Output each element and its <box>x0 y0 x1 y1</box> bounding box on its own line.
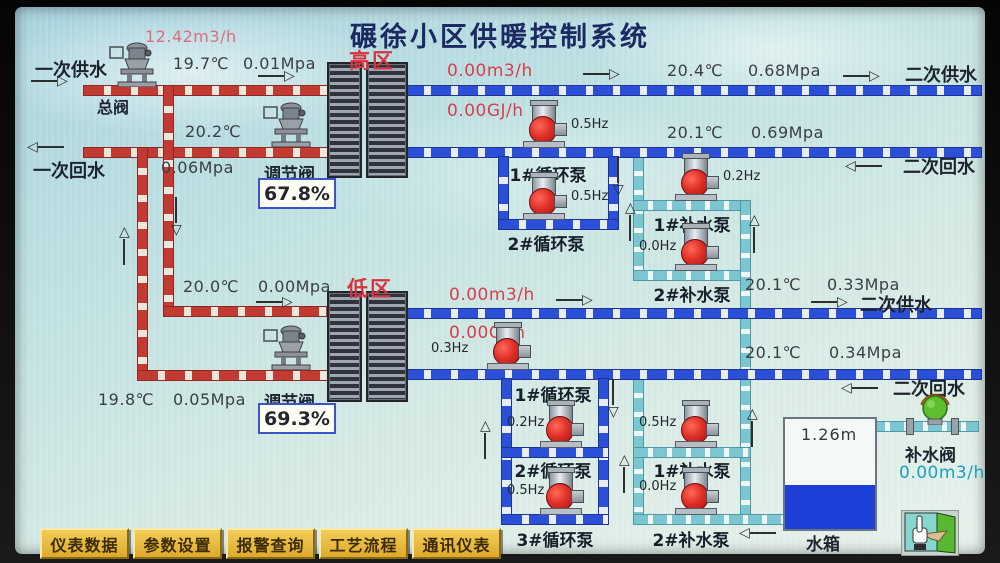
high-zone-return-temp: 20.1℃ <box>667 123 723 142</box>
secondary-supply-high-label: 二次供水 <box>905 61 977 87</box>
nav-button-parameter-settings[interactable]: 参数设置 <box>133 528 222 559</box>
nav-button-instrument-data[interactable]: 仪表数据 <box>40 528 129 559</box>
regulating-valve-low-icon <box>261 324 317 370</box>
valve-opening-low-display[interactable]: 69.3% <box>258 403 336 434</box>
circ-pump-1-high-icon <box>521 103 565 147</box>
makeup-pump-2-high-frequency: 0.0Hz <box>639 239 676 254</box>
tank-label: 水箱 <box>806 530 840 555</box>
makeup-pump-1-high-frequency: 0.2Hz <box>723 169 760 184</box>
pipe-secondary-supply-high <box>403 85 982 96</box>
primary-return-pressure: 0.06Mpa <box>161 158 234 177</box>
makeup-pump-2-low-icon <box>673 470 717 514</box>
makeup-valve-icon <box>913 391 957 425</box>
secondary-return-high-label: 二次回水 <box>903 153 975 179</box>
makeup-pump-1-low-icon <box>673 403 717 447</box>
primary-low-return-temp: 19.8℃ <box>98 390 154 409</box>
circ-pump-3-low-frequency: 0.5Hz <box>507 483 544 498</box>
pipe-makeup-high-bottom <box>633 270 751 281</box>
hmi-panel-bezel: 碾徐小区供暖控制系统 <box>0 0 1000 563</box>
high-zone-flow-value: 0.00m3/h <box>447 61 533 81</box>
main-valve-label: 总阀 <box>97 94 129 118</box>
primary-low-supply-pressure: 0.00Mpa <box>258 277 331 296</box>
flow-arrow-up-icon: △ <box>747 407 758 447</box>
heat-exchanger-low-column1 <box>327 291 362 402</box>
circ-pump-2-high-icon <box>521 175 565 219</box>
heat-exchanger-high-column1 <box>327 62 362 178</box>
flow-arrow-down-icon: ▽ <box>613 157 624 197</box>
makeup-valve-flow-value: 0.00m3/h <box>899 463 985 483</box>
makeup-pump-1-low-frequency: 0.5Hz <box>639 415 676 430</box>
secondary-supply-low-label: 二次供水 <box>860 291 932 317</box>
flow-arrow-down-icon: ▽ <box>171 197 182 237</box>
nav-button-comm-instruments[interactable]: 通讯仪表 <box>412 528 501 559</box>
flow-arrow-up-icon: △ <box>480 419 491 459</box>
makeup-pump-2-high-icon <box>673 226 717 270</box>
makeup-pump-2-high-label: 2#补水泵 <box>640 281 744 306</box>
regulating-valve-high-icon <box>261 101 317 147</box>
valve-opening-high-display[interactable]: 67.8% <box>258 178 336 209</box>
heat-exchanger-high-column2 <box>366 62 408 178</box>
nav-button-alarm-query[interactable]: 报警查询 <box>226 528 315 559</box>
nav-button-process-flow[interactable]: 工艺流程 <box>319 528 408 559</box>
circ-pump-2-high-label: 2#循环泵 <box>494 230 598 255</box>
main-valve-icon <box>107 41 163 87</box>
circ-pump-2-high-frequency: 0.5Hz <box>571 189 608 204</box>
flow-arrow-down-icon: ▽ <box>608 379 619 419</box>
circ-pump-3-low-icon <box>538 470 582 514</box>
high-zone-return-pressure: 0.69Mpa <box>751 123 824 142</box>
flow-arrow-left-icon: ◁ <box>845 159 882 173</box>
circ-pump-2-low-frequency: 0.2Hz <box>507 415 544 430</box>
low-zone-flow-value: 0.00m3/h <box>449 285 535 305</box>
circ-pump-2-low-icon <box>538 403 582 447</box>
hmi-screen: 碾徐小区供暖控制系统 <box>15 7 985 554</box>
primary-return-temp: 20.2℃ <box>185 122 241 141</box>
flow-arrow-right-icon: ▷ <box>583 67 620 81</box>
pipe-primary-supply-low <box>163 306 335 317</box>
circ-pump-1-low-frequency: 0.3Hz <box>431 341 468 356</box>
pipe-primary-return <box>83 147 335 158</box>
flow-arrow-right-icon: ▷ <box>258 69 295 83</box>
primary-supply-temp: 19.7℃ <box>173 54 229 73</box>
low-zone-return-temp: 20.1℃ <box>745 343 801 362</box>
flow-arrow-up-icon: △ <box>119 225 130 265</box>
primary-flow-value: 12.42m3/h <box>145 27 237 46</box>
flow-arrow-up-icon: △ <box>625 201 636 241</box>
pipe-circ-high-bottom <box>498 219 619 230</box>
makeup-pump-1-high-icon <box>673 156 717 200</box>
flow-arrow-left-icon: ◁ <box>841 381 878 395</box>
pipe-primary-return-branch <box>137 147 148 381</box>
flow-arrow-right-icon: ▷ <box>843 69 880 83</box>
tank-level-value: 1.26m <box>801 425 857 444</box>
pipe-primary-return-low <box>137 370 335 381</box>
pipe-makeup-high-rung <box>633 200 751 211</box>
circ-pump-1-high-frequency: 0.5Hz <box>571 117 608 132</box>
flow-arrow-right-icon: ▷ <box>256 295 293 309</box>
low-zone-supply-temp: 20.1℃ <box>745 275 801 294</box>
low-zone-label: 低区 <box>347 273 393 303</box>
low-zone-return-pressure: 0.34Mpa <box>829 343 902 362</box>
flow-arrow-left-icon: ◁ <box>27 140 64 154</box>
high-zone-heat-value: 0.00GJ/h <box>447 101 524 121</box>
makeup-pump-2-low-label: 2#补水泵 <box>639 526 743 551</box>
flow-arrow-right-icon: ▷ <box>556 293 593 307</box>
flow-arrow-up-icon: △ <box>619 453 630 493</box>
primary-low-supply-temp: 20.0℃ <box>183 277 239 296</box>
circ-pump-3-low-label: 3#循环泵 <box>503 526 607 551</box>
primary-low-return-pressure: 0.05Mpa <box>173 390 246 409</box>
high-zone-supply-pressure: 0.68Mpa <box>748 61 821 80</box>
tank-water-fill <box>785 485 875 529</box>
circ-pump-1-low-icon <box>485 325 529 369</box>
flow-arrow-right-icon: ▷ <box>811 295 848 309</box>
flow-arrow-left-icon: ◁ <box>739 526 776 540</box>
pipe-makeup-low-bottom <box>633 514 787 525</box>
flow-arrow-up-icon: △ <box>749 213 760 253</box>
flow-arrow-right-icon: ▷ <box>31 74 68 88</box>
heat-exchanger-low-column2 <box>366 291 408 402</box>
makeup-pump-2-low-frequency: 0.0Hz <box>639 479 676 494</box>
pipe-circ-low-bottom <box>501 514 609 525</box>
primary-return-label: 一次回水 <box>33 157 105 183</box>
high-zone-supply-temp: 20.4℃ <box>667 61 723 80</box>
water-tank: 1.26m <box>783 417 877 531</box>
exit-screen-button[interactable] <box>901 510 959 556</box>
high-zone-label: 高区 <box>349 45 395 75</box>
